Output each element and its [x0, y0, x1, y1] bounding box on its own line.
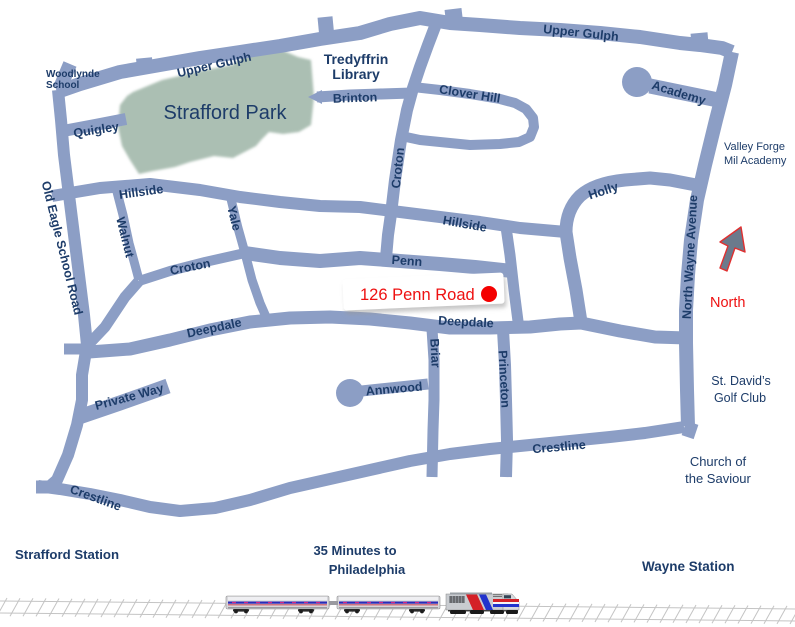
svg-text:Tredyffrin: Tredyffrin: [324, 51, 389, 67]
svg-text:Brinton: Brinton: [333, 90, 378, 106]
svg-text:North: North: [710, 295, 745, 311]
svg-text:Philadelphia: Philadelphia: [329, 562, 406, 577]
svg-text:Penn: Penn: [391, 253, 422, 269]
svg-text:St. David’s: St. David’s: [711, 374, 771, 388]
svg-text:Valley Forge: Valley Forge: [724, 141, 785, 153]
svg-text:Strafford Park: Strafford Park: [163, 102, 287, 124]
svg-text:Woodlynde: Woodlynde: [46, 69, 100, 80]
svg-text:126 Penn Road: 126 Penn Road: [360, 286, 475, 304]
svg-text:Library: Library: [332, 66, 380, 82]
svg-text:Mil Academy: Mil Academy: [724, 155, 787, 167]
svg-text:Wayne Station: Wayne Station: [642, 559, 735, 574]
svg-text:Deepdale: Deepdale: [438, 314, 494, 331]
svg-text:Golf Club: Golf Club: [714, 391, 766, 405]
svg-text:Strafford Station: Strafford Station: [15, 547, 119, 562]
svg-text:Church of: Church of: [690, 454, 747, 469]
svg-text:35 Minutes to: 35 Minutes to: [313, 543, 396, 558]
svg-text:Briar: Briar: [427, 338, 443, 368]
svg-text:School: School: [46, 80, 80, 91]
svg-text:the Saviour: the Saviour: [685, 471, 751, 486]
